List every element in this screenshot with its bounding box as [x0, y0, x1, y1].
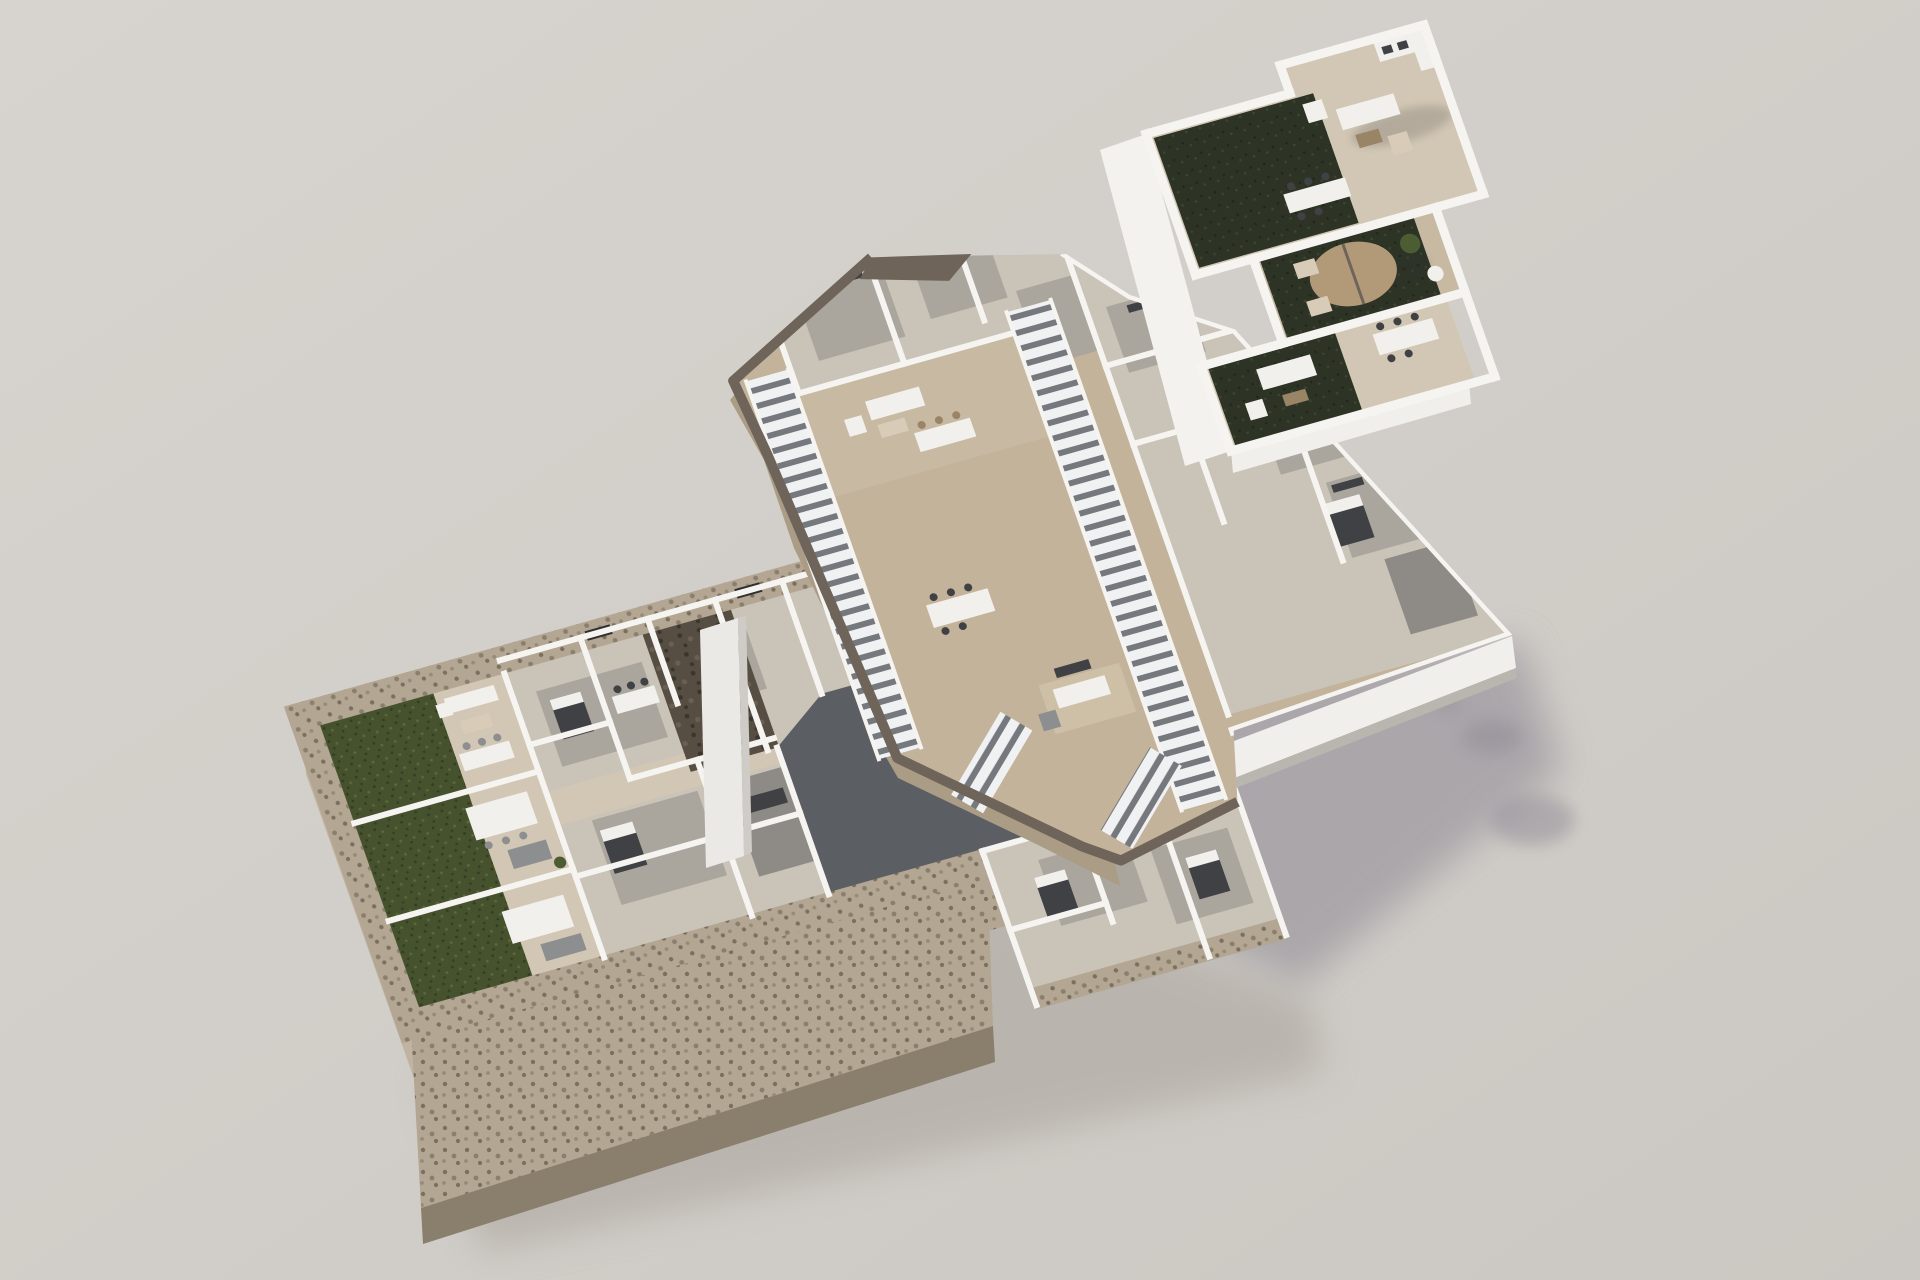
scene-canvas — [0, 0, 1920, 1280]
cast-shadow-roof-blob-1 — [1462, 720, 1522, 754]
stair-core-column — [700, 618, 744, 868]
floorplan-render — [0, 0, 1920, 1280]
cast-shadow-roof-blob-2 — [1490, 795, 1574, 845]
